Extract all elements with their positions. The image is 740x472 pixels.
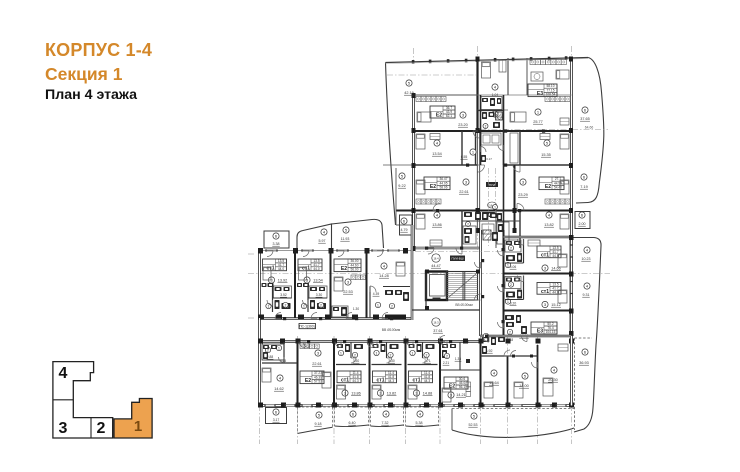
svg-text:13.82: 13.82: [387, 392, 397, 396]
svg-text:1: 1: [377, 303, 379, 307]
svg-text:14.28: 14.28: [379, 274, 389, 278]
svg-text:36.93: 36.93: [579, 361, 589, 365]
svg-text:62.1: 62.1: [446, 114, 452, 118]
svg-text:2: 2: [285, 303, 287, 307]
svg-text:42.19: 42.19: [404, 91, 414, 95]
svg-text:4: 4: [59, 365, 68, 382]
svg-text:1: 1: [376, 351, 378, 355]
svg-text:44.0: 44.0: [278, 267, 284, 271]
svg-text:23.29: 23.29: [518, 193, 528, 197]
svg-text:9.18: 9.18: [315, 422, 322, 426]
svg-text:Е2: Е2: [305, 378, 311, 384]
svg-text:1: 1: [412, 351, 414, 355]
svg-text:44.3: 44.3: [388, 379, 394, 383]
svg-text:3: 3: [59, 420, 68, 437]
svg-text:2: 2: [510, 283, 512, 287]
svg-text:22.61: 22.61: [459, 190, 469, 194]
svg-text:44.47: 44.47: [431, 264, 441, 268]
svg-text:2: 2: [509, 330, 511, 334]
svg-text:14.62: 14.62: [274, 387, 284, 391]
svg-text:2: 2: [354, 353, 356, 357]
svg-text:2: 2: [426, 353, 428, 357]
svg-text:10.23: 10.23: [582, 257, 591, 261]
svg-text:1.30: 1.30: [353, 307, 359, 311]
svg-text:2: 2: [390, 353, 392, 357]
svg-text:44.3: 44.3: [352, 379, 358, 383]
svg-text:15.12: 15.12: [551, 303, 561, 307]
svg-text:5.97: 5.97: [319, 239, 326, 243]
svg-text:1: 1: [303, 304, 305, 308]
svg-text:Е2: Е2: [545, 184, 551, 190]
svg-text:1: 1: [278, 346, 280, 350]
svg-text:1: 1: [340, 351, 342, 355]
svg-text:64.66: 64.66: [585, 126, 594, 130]
svg-text:44.0: 44.0: [313, 267, 319, 271]
svg-text:2: 2: [97, 420, 106, 437]
svg-text:Е2: Е2: [341, 266, 347, 272]
svg-text:58.06: 58.06: [440, 186, 448, 190]
svg-text:2: 2: [446, 354, 448, 358]
svg-text:3.38: 3.38: [273, 242, 280, 246]
svg-text:16.3: 16.3: [433, 320, 439, 324]
svg-text:ст1: ст1: [302, 265, 310, 271]
svg-text:22.53: 22.53: [343, 290, 353, 294]
svg-text:3.17: 3.17: [273, 418, 280, 422]
svg-text:11.93: 11.93: [341, 237, 350, 241]
svg-text:22.61: 22.61: [312, 362, 322, 366]
svg-text:3.17: 3.17: [486, 157, 492, 161]
svg-text:54.40: 54.40: [554, 186, 562, 190]
svg-text:6.55: 6.55: [461, 155, 468, 159]
svg-text:37.65: 37.65: [580, 117, 590, 121]
svg-text:9.31: 9.31: [583, 293, 590, 297]
svg-text:1: 1: [268, 304, 270, 308]
svg-text:1: 1: [507, 263, 509, 267]
svg-text:ст1: ст1: [541, 252, 549, 258]
svg-text:56.00: 56.00: [351, 268, 359, 272]
svg-text:52.53: 52.53: [469, 423, 478, 427]
svg-text:4.48: 4.48: [507, 338, 513, 342]
svg-text:13.86: 13.86: [432, 223, 442, 227]
svg-text:37.61: 37.61: [433, 329, 443, 333]
svg-text:15.35: 15.35: [541, 153, 551, 157]
svg-text:14.00: 14.00: [519, 384, 529, 388]
svg-text:2: 2: [391, 304, 393, 308]
svg-text:13.92: 13.92: [278, 279, 288, 283]
svg-text:44.3: 44.3: [424, 379, 430, 383]
svg-text:2: 2: [510, 246, 512, 250]
svg-text:16.4: 16.4: [433, 256, 439, 260]
svg-text:4.79: 4.79: [401, 228, 408, 232]
svg-text:108.54: 108.54: [546, 93, 556, 97]
svg-text:ПУИ: ПУИ: [489, 183, 495, 187]
svg-text:57.52: 57.52: [314, 380, 322, 384]
svg-text:25.77: 25.77: [533, 120, 543, 124]
svg-text:4.39: 4.39: [373, 292, 380, 296]
svg-text:14.21: 14.21: [456, 393, 466, 397]
svg-text:2.00: 2.00: [579, 222, 586, 226]
svg-text:ПУИ-ВШ: ПУИ-ВШ: [452, 257, 464, 261]
svg-text:Е2: Е2: [436, 113, 442, 119]
svg-text:7.32: 7.32: [382, 421, 389, 425]
svg-text:23.20: 23.20: [458, 123, 468, 127]
svg-text:1: 1: [507, 300, 509, 304]
svg-text:ПС-1(300): ПС-1(300): [299, 325, 314, 329]
svg-text:ст1: ст1: [341, 377, 349, 383]
svg-text:7.19: 7.19: [580, 185, 587, 189]
svg-text:14.88: 14.88: [423, 392, 433, 396]
svg-text:13.54: 13.54: [313, 279, 323, 283]
svg-text:2: 2: [485, 124, 487, 128]
svg-text:3.30: 3.30: [316, 293, 323, 297]
svg-text:56.1: 56.1: [459, 385, 465, 389]
svg-text:13.86: 13.86: [351, 392, 361, 396]
svg-text:13.54: 13.54: [432, 152, 442, 156]
svg-text:6.40: 6.40: [349, 421, 356, 425]
svg-text:3.52: 3.52: [280, 293, 287, 297]
svg-text:13.82: 13.82: [544, 223, 554, 227]
svg-text:ст1: ст1: [376, 377, 384, 383]
svg-text:5.38: 5.38: [416, 421, 423, 425]
svg-text:1: 1: [494, 205, 496, 209]
svg-text:2: 2: [467, 222, 469, 226]
svg-text:ст1: ст1: [412, 377, 420, 383]
svg-text:ВВ Ø100мм: ВВ Ø100мм: [455, 303, 472, 307]
svg-text:ВВ Ø100мм: ВВ Ø100мм: [382, 328, 401, 332]
svg-text:1: 1: [134, 418, 142, 435]
svg-text:ст1: ст1: [541, 289, 549, 295]
svg-text:Е3: Е3: [537, 91, 543, 97]
svg-text:Е3: Е3: [537, 329, 543, 335]
svg-text:104.15: 104.15: [546, 330, 556, 334]
svg-text:9.22: 9.22: [398, 184, 405, 188]
svg-text:2: 2: [320, 303, 322, 307]
svg-text:ст1: ст1: [266, 265, 274, 271]
svg-text:Е2: Е2: [430, 184, 436, 190]
svg-text:2.21: 2.21: [443, 361, 449, 365]
